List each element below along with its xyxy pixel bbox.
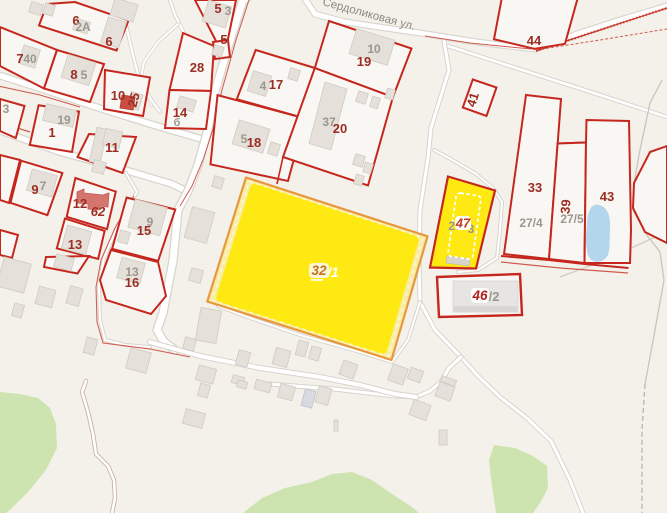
- svg-text:33: 33: [528, 180, 542, 195]
- svg-text:/2: /2: [489, 289, 500, 304]
- svg-text:3: 3: [225, 4, 232, 18]
- svg-text:10: 10: [367, 42, 381, 56]
- svg-text:6: 6: [105, 34, 112, 49]
- svg-text:5: 5: [241, 132, 248, 146]
- svg-text:13: 13: [125, 265, 139, 279]
- svg-text:46: 46: [471, 288, 488, 303]
- svg-text:/1: /1: [326, 264, 339, 280]
- svg-text:28: 28: [190, 60, 204, 75]
- svg-text:1: 1: [48, 125, 55, 140]
- svg-text:37: 37: [322, 115, 336, 129]
- svg-text:44: 44: [527, 33, 542, 48]
- svg-text:б: б: [174, 117, 181, 129]
- svg-text:47: 47: [455, 216, 471, 231]
- svg-text:5: 5: [214, 1, 221, 16]
- svg-text:27/4: 27/4: [519, 216, 543, 230]
- svg-text:40: 40: [23, 52, 37, 66]
- svg-text:39: 39: [557, 199, 573, 215]
- svg-text:8: 8: [70, 67, 77, 82]
- svg-text:2A: 2A: [75, 20, 91, 34]
- svg-text:3: 3: [3, 102, 10, 116]
- svg-text:32: 32: [311, 263, 327, 278]
- svg-text:19: 19: [357, 54, 371, 69]
- svg-text:9: 9: [147, 215, 154, 229]
- svg-text:17: 17: [269, 77, 283, 92]
- svg-text:12: 12: [73, 196, 87, 211]
- svg-text:62: 62: [91, 204, 106, 219]
- svg-text:4: 4: [260, 79, 267, 93]
- svg-text:11: 11: [105, 140, 119, 155]
- svg-text:10: 10: [111, 88, 125, 103]
- svg-text:13: 13: [68, 237, 82, 252]
- svg-text:7: 7: [40, 179, 47, 193]
- svg-text:9: 9: [31, 182, 38, 197]
- svg-text:18: 18: [247, 135, 261, 150]
- svg-text:5: 5: [220, 32, 227, 47]
- svg-text:43: 43: [600, 189, 614, 204]
- svg-text:5: 5: [81, 68, 88, 82]
- svg-text:19: 19: [57, 113, 71, 127]
